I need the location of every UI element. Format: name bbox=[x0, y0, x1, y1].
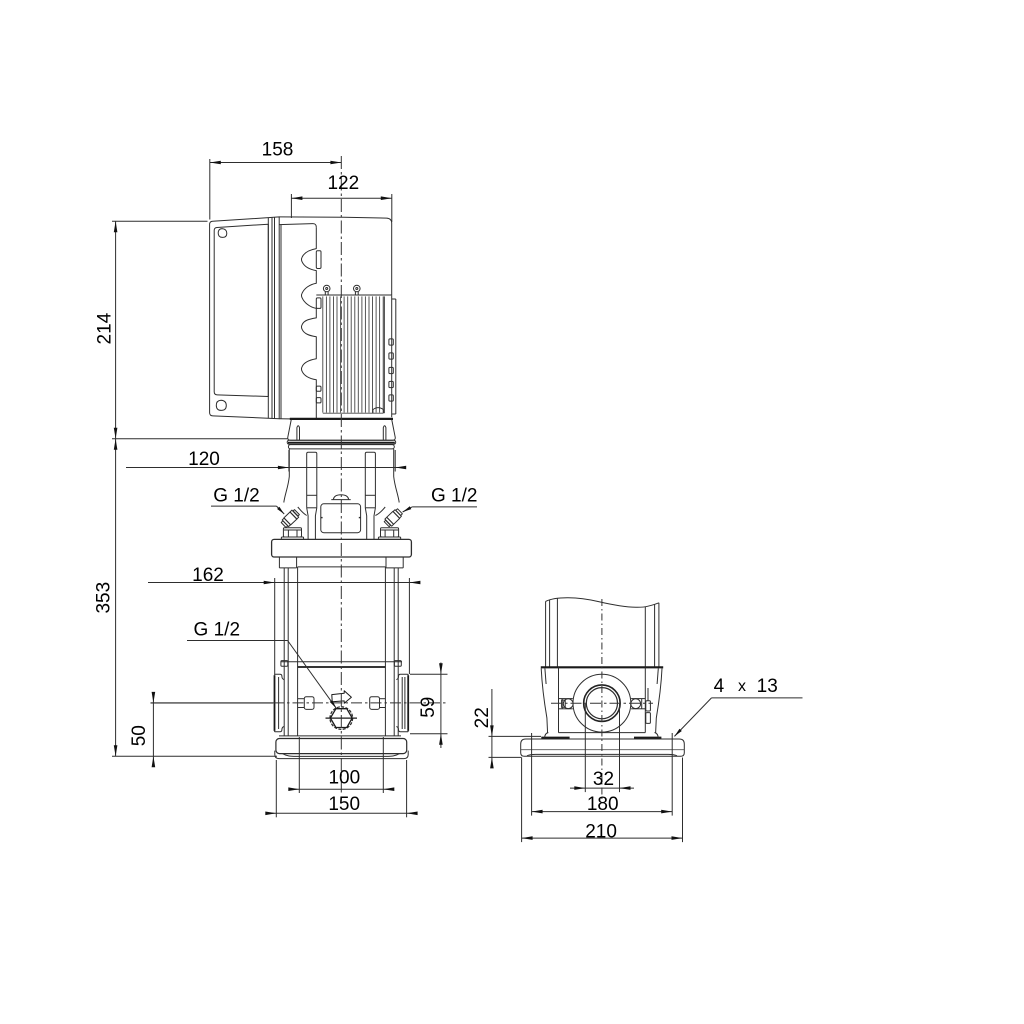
svg-text:122: 122 bbox=[327, 173, 359, 194]
svg-text:210: 210 bbox=[585, 821, 617, 842]
svg-text:G 1/2: G 1/2 bbox=[194, 620, 240, 641]
svg-text:120: 120 bbox=[188, 449, 220, 470]
svg-text:4: 4 bbox=[714, 676, 725, 697]
svg-text:13: 13 bbox=[757, 676, 778, 697]
svg-text:G 1/2: G 1/2 bbox=[213, 486, 259, 507]
svg-text:150: 150 bbox=[328, 794, 360, 815]
svg-text:32: 32 bbox=[593, 769, 614, 790]
svg-text:214: 214 bbox=[95, 312, 116, 344]
svg-text:x: x bbox=[738, 678, 746, 695]
svg-text:162: 162 bbox=[192, 565, 224, 586]
svg-text:G 1/2: G 1/2 bbox=[431, 486, 477, 507]
svg-text:353: 353 bbox=[93, 582, 114, 614]
svg-text:59: 59 bbox=[418, 697, 439, 718]
svg-text:22: 22 bbox=[472, 707, 493, 728]
svg-text:158: 158 bbox=[262, 139, 294, 160]
svg-text:50: 50 bbox=[129, 725, 150, 746]
svg-text:100: 100 bbox=[328, 768, 360, 789]
svg-text:180: 180 bbox=[587, 794, 619, 815]
